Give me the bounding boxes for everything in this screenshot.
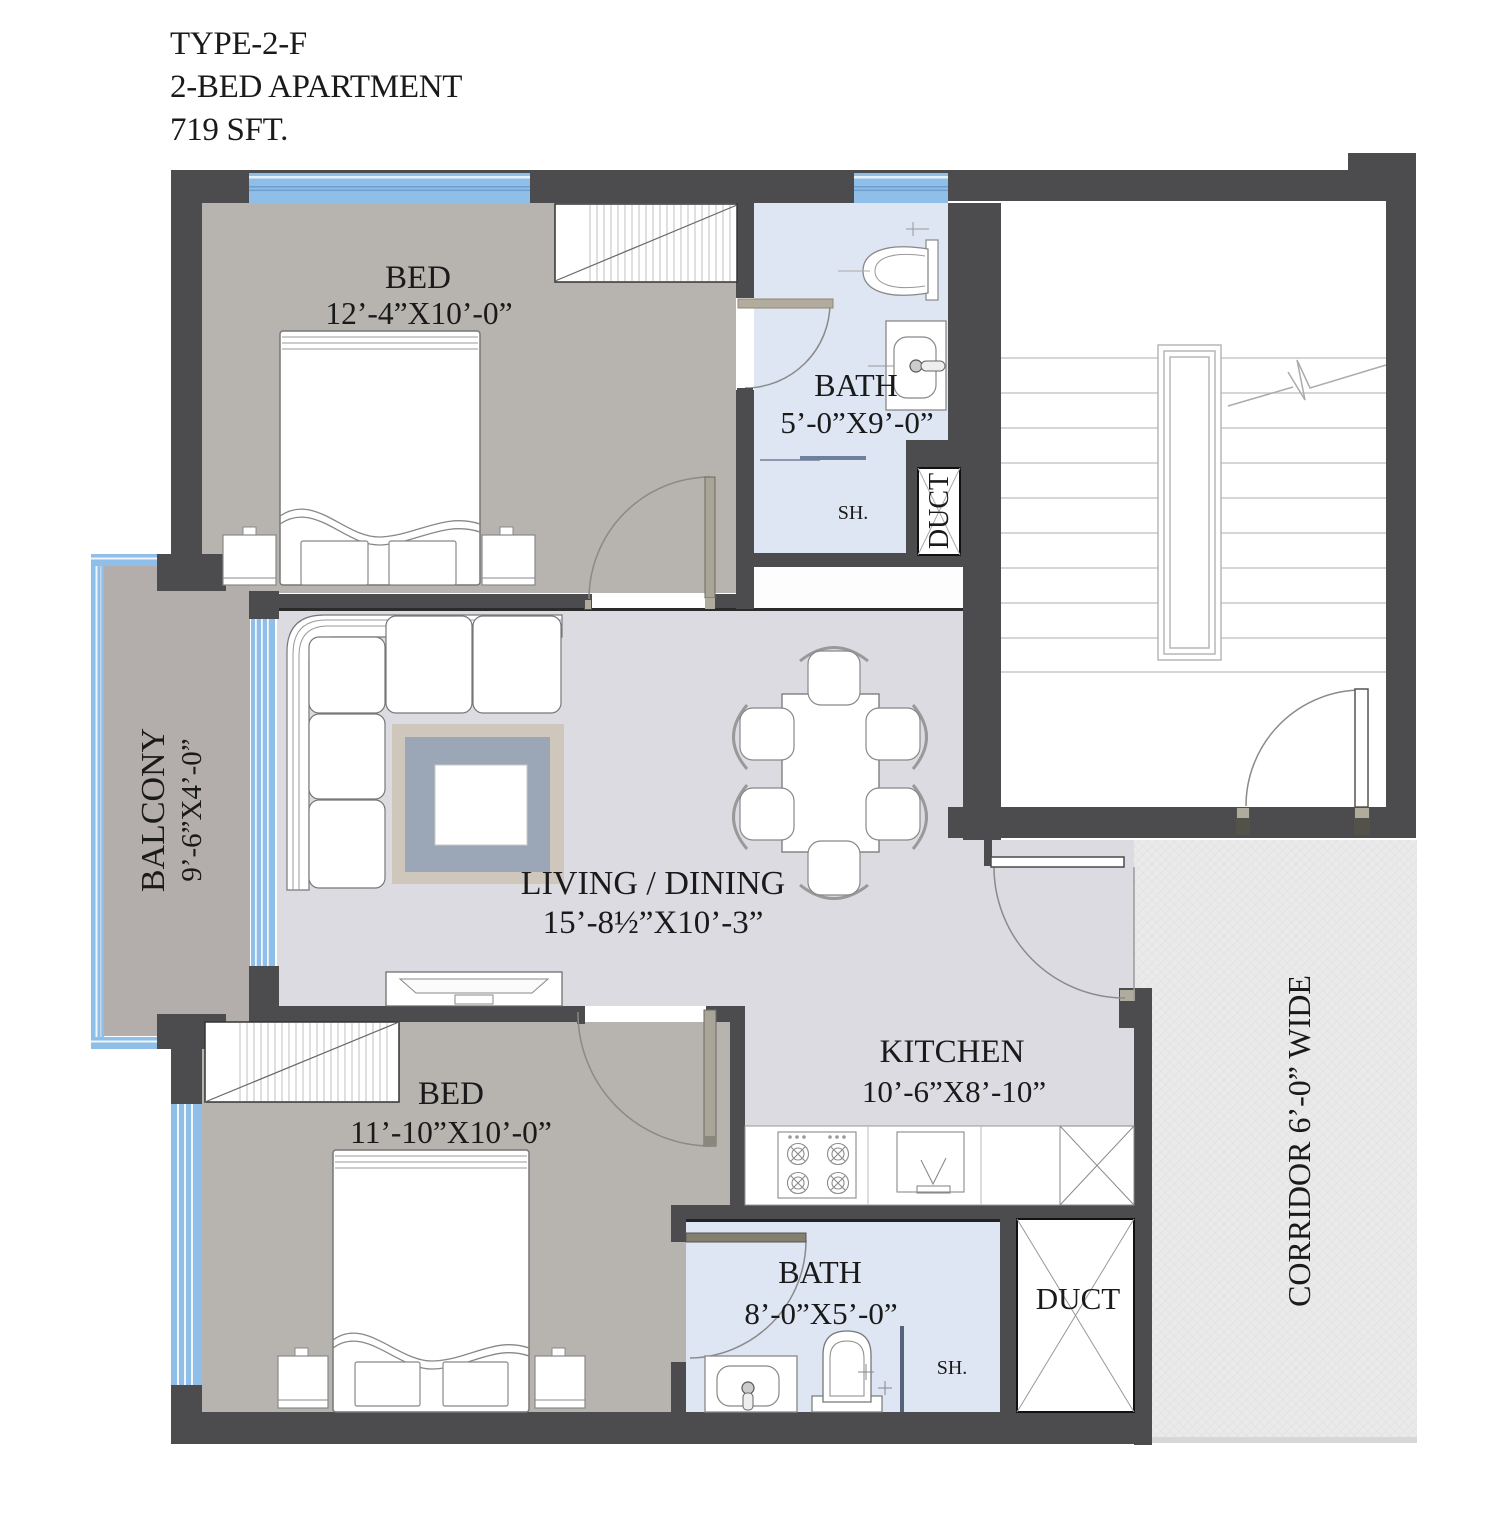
svg-text:TYPE-2-F: TYPE-2-F [170, 26, 307, 62]
svg-text:SH.: SH. [838, 502, 869, 524]
svg-text:2-BED APARTMENT: 2-BED APARTMENT [170, 69, 462, 105]
svg-text:DUCT: DUCT [1036, 1281, 1120, 1316]
svg-text:9’-6”X4’-0”: 9’-6”X4’-0” [176, 738, 208, 881]
svg-text:BATH: BATH [778, 1254, 862, 1290]
svg-text:11’-10”X10’-0”: 11’-10”X10’-0” [350, 1115, 552, 1150]
svg-text:12’-4”X10’-0”: 12’-4”X10’-0” [325, 296, 512, 331]
svg-text:BED: BED [385, 260, 451, 296]
svg-text:10’-6”X8’-10”: 10’-6”X8’-10” [862, 1074, 1046, 1109]
svg-text:BED: BED [418, 1076, 484, 1112]
svg-text:SH.: SH. [937, 1357, 968, 1379]
svg-text:8’-0”X5’-0”: 8’-0”X5’-0” [744, 1296, 897, 1331]
svg-text:KITCHEN: KITCHEN [880, 1034, 1025, 1070]
svg-text:LIVING / DINING: LIVING / DINING [521, 865, 785, 902]
svg-text:BALCONY: BALCONY [135, 728, 172, 892]
svg-text:5’-0”X9’-0”: 5’-0”X9’-0” [780, 405, 933, 440]
svg-text:DUCT: DUCT [924, 473, 955, 549]
svg-text:BATH: BATH [814, 367, 898, 403]
svg-text:CORRIDOR 6’-0” WIDE: CORRIDOR 6’-0” WIDE [1281, 975, 1317, 1307]
svg-text:719 SFT.: 719 SFT. [170, 112, 288, 148]
svg-text:15’-8½”X10’-3”: 15’-8½”X10’-3” [543, 905, 764, 941]
